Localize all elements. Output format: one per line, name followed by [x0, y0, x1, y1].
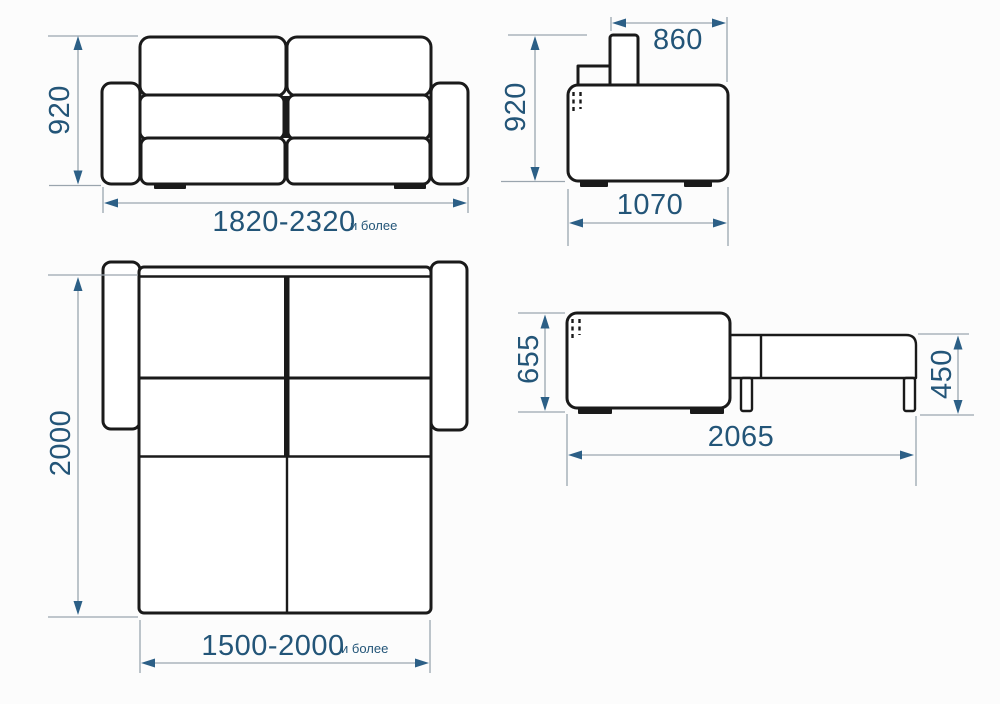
arrow-down-icon [954, 400, 963, 414]
side-view-folded: 860 920 1070 [500, 17, 728, 246]
unfolded-length-label: 2065 [708, 421, 775, 453]
arrow-right-icon [900, 451, 914, 460]
dimension-seat-height: 655 [513, 313, 565, 412]
arrow-up-icon [541, 315, 550, 329]
side-height-label: 920 [500, 82, 532, 132]
sofa-dimensions-diagram: 920 1820-2320 и более 860 [0, 0, 1000, 704]
bed-width-suffix: и более [341, 641, 388, 656]
arrow-right-icon [453, 199, 467, 208]
bed-height-label: 450 [926, 349, 958, 399]
backrest-side [610, 35, 638, 87]
back-width-label: 860 [653, 24, 703, 56]
arrow-up-icon [74, 277, 83, 291]
mid-cushion-right [288, 95, 430, 139]
dimension-depth: 1070 [568, 187, 728, 246]
front-width-label: 1820-2320 [212, 206, 355, 238]
foot-left [154, 184, 186, 190]
arrow-left-icon [569, 219, 583, 228]
back-cushion-left [140, 37, 286, 96]
bed-leg-left [741, 378, 752, 411]
bed-leg-right [904, 378, 915, 411]
foot-left [580, 181, 608, 187]
depth-label: 1070 [617, 189, 684, 221]
arrow-down-icon [74, 601, 83, 615]
armrest-left [102, 83, 140, 184]
dimension-bed-width: 1500-2000 и более [140, 620, 430, 673]
foot-left [578, 408, 612, 414]
arrow-down-icon [74, 171, 83, 185]
dimension-unfolded-length: 2065 [567, 414, 916, 486]
bed-extension-outline [730, 335, 916, 378]
mid-cushion-gap [283, 96, 289, 138]
center-divider-thick [284, 277, 290, 456]
foot-right [394, 184, 426, 190]
bed-length-label: 2000 [45, 410, 77, 477]
arrow-right-icon [415, 659, 429, 668]
arrow-right-icon [712, 19, 726, 28]
foot-right [690, 408, 724, 414]
arrow-down-icon [541, 397, 550, 411]
arrow-up-icon [531, 36, 540, 50]
seat-height-label: 655 [513, 334, 545, 384]
dimension-front-width: 1820-2320 и более [103, 187, 468, 238]
arrow-left-icon [568, 451, 582, 460]
seat-cushion-right [287, 138, 430, 184]
seat-cushion-left [141, 138, 285, 184]
armrest-left [103, 262, 140, 429]
bed-width-label: 1500-2000 [201, 630, 344, 662]
sofa-body-side [568, 85, 728, 181]
front-width-suffix: и более [350, 218, 397, 233]
arrow-left-icon [104, 199, 118, 208]
armrest-right [431, 83, 468, 184]
arrow-up-icon [74, 36, 83, 50]
arrow-left-icon [141, 659, 155, 668]
arrow-down-icon [531, 167, 540, 181]
armrest-right [431, 262, 467, 430]
front-view-folded: 920 1820-2320 и более [44, 36, 468, 238]
arrow-left-icon [612, 19, 626, 28]
front-height-label: 920 [44, 85, 76, 135]
arrow-up-icon [954, 336, 963, 350]
back-cushion-right [287, 37, 431, 96]
side-view-unfolded: 655 450 2065 [513, 313, 974, 486]
mid-cushion-left [140, 95, 284, 139]
dimension-bed-height: 450 [918, 334, 974, 415]
arrow-right-icon [713, 219, 727, 228]
sofa-body-side [567, 313, 730, 408]
top-view-unfolded: 2000 1500-2000 и более [45, 262, 467, 673]
foot-right [684, 181, 712, 187]
